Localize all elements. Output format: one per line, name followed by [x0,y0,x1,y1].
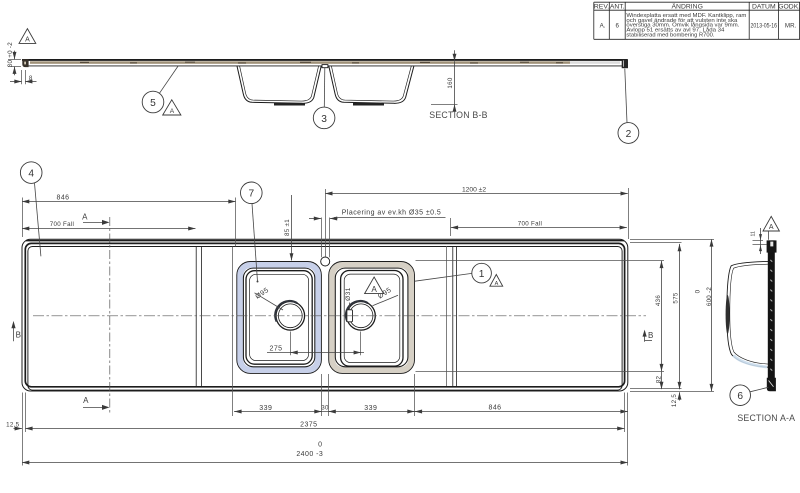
svg-text:11: 11 [751,231,757,236]
svg-text:339: 339 [259,405,272,412]
svg-text:SECTION B-B: SECTION B-B [429,110,487,120]
svg-text:600 -2: 600 -2 [706,287,713,307]
svg-text:A: A [495,281,499,287]
svg-text:A: A [83,396,89,405]
svg-text:3: 3 [321,114,327,125]
svg-text:4: 4 [28,169,34,180]
svg-text:0: 0 [694,289,701,293]
svg-text:GODK.: GODK. [778,4,800,11]
svg-text:846: 846 [488,405,501,412]
svg-text:30 +0 -2: 30 +0 -2 [7,42,14,68]
svg-text:ANT.: ANT. [610,4,625,11]
svg-text:DATUM: DATUM [752,4,776,11]
svg-text:A: A [25,36,30,43]
svg-text:846: 846 [56,194,69,201]
svg-text:0: 0 [318,441,322,448]
svg-text:B: B [16,330,22,339]
svg-text:A: A [82,213,88,222]
svg-text:12,5: 12,5 [671,394,678,408]
svg-text:85 ±1: 85 ±1 [284,219,291,236]
svg-text:1: 1 [479,269,485,280]
svg-text:5: 5 [150,98,156,109]
svg-text:2400 -3: 2400 -3 [296,451,323,458]
svg-text:2013-05-16: 2013-05-16 [751,23,778,30]
svg-text:6: 6 [615,23,619,30]
svg-text:12,5: 12,5 [6,422,20,429]
svg-text:SECTION A-A: SECTION A-A [737,413,795,423]
svg-text:700 Fall: 700 Fall [518,220,542,227]
svg-text:339: 339 [364,405,377,412]
svg-text:B: B [648,331,654,340]
svg-text:MR.: MR. [785,23,797,30]
svg-text:A: A [769,224,774,231]
svg-text:2: 2 [626,129,632,140]
svg-text:700 Fall: 700 Fall [50,221,74,228]
svg-text:A: A [371,285,377,294]
svg-text:575: 575 [672,292,679,303]
svg-text:436: 436 [655,295,662,306]
svg-text:A: A [170,108,175,115]
svg-text:6: 6 [737,391,743,402]
svg-text:ÄNDRING: ÄNDRING [672,3,703,11]
svg-text:Ø31: Ø31 [345,287,352,301]
svg-text:275: 275 [269,346,282,353]
svg-text:7: 7 [248,189,254,200]
svg-text:1200 ±2: 1200 ±2 [462,187,486,194]
svg-text:160: 160 [447,77,454,88]
svg-text:Placering av ev.kh Ø35 ±0.5: Placering av ev.kh Ø35 ±0.5 [342,210,442,217]
svg-text:stabiliserad med bombering R70: stabiliserad med bombering R700. [626,33,714,39]
svg-text:A.: A. [600,23,606,30]
svg-text:2375: 2375 [300,422,317,429]
svg-text:8: 8 [29,75,33,82]
svg-text:REV.: REV. [594,4,609,11]
svg-text:30: 30 [321,405,329,412]
svg-text:82: 82 [656,376,663,384]
